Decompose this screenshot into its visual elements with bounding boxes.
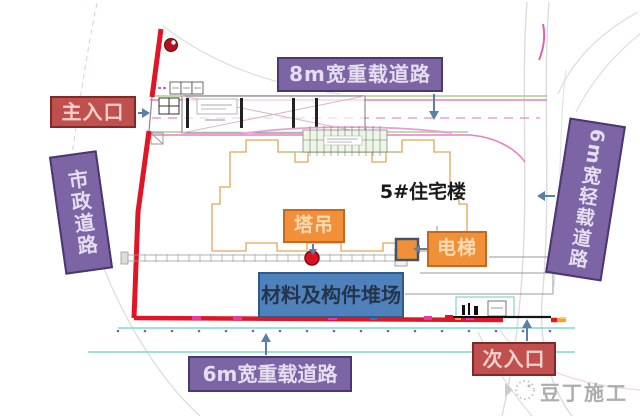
label-road-top: 8m宽重载道路 <box>277 57 443 92</box>
label-tower-crane: 塔吊 <box>283 209 345 243</box>
arrow-top-road <box>429 94 439 120</box>
arrow-main-entrance <box>138 108 150 118</box>
survey-marker-icon <box>165 39 178 52</box>
boundary-dots <box>117 330 552 333</box>
label-road-bottom: 6m宽重载道路 <box>188 356 352 392</box>
watermark-text: 豆丁施工 <box>540 377 628 406</box>
label-storage-yard: 材料及构件堆场 <box>258 272 404 318</box>
construction-site-plan: 8m宽重载道路 主入口 市政道路 6m宽轻载道路 5#住宅楼 塔吊 电梯 材料及… <box>0 0 640 416</box>
building-title: 5#住宅楼 <box>368 181 478 205</box>
label-secondary-entrance: 次入口 <box>472 342 556 376</box>
rebar-shed <box>240 126 452 156</box>
secondary-gate-structures <box>445 297 522 319</box>
label-elevator: 电梯 <box>427 231 487 267</box>
label-main-entrance: 主入口 <box>50 96 136 128</box>
